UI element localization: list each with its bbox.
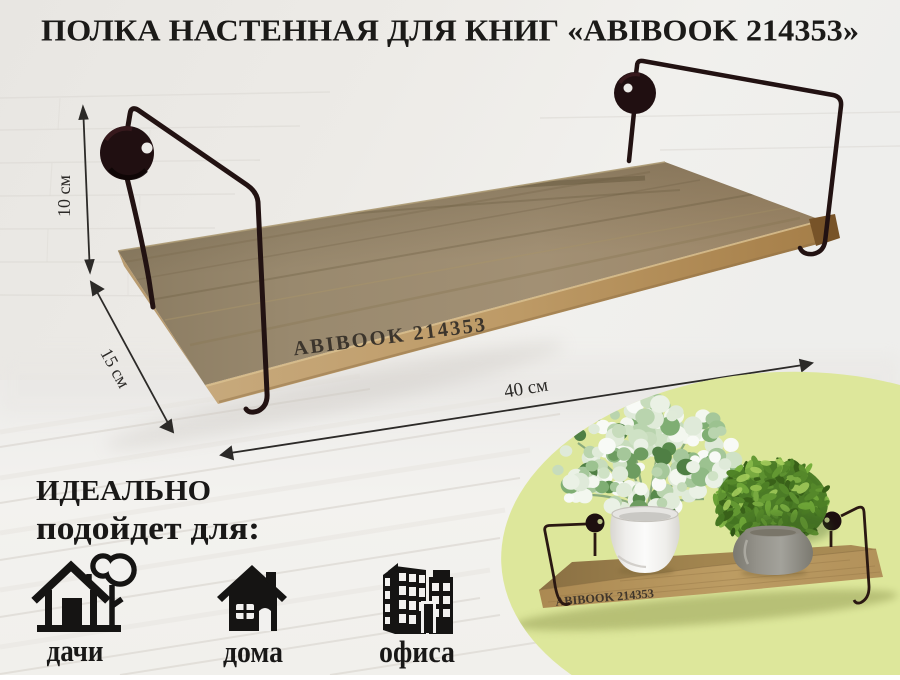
svg-text:офиса: офиса	[379, 634, 455, 669]
svg-text:10 см: 10 см	[54, 175, 74, 217]
svg-text:ПОЛКА НАСТЕННАЯ ДЛЯ КНИГ «ABIB: ПОЛКА НАСТЕННАЯ ДЛЯ КНИГ «ABIBOOK 214353…	[41, 14, 859, 48]
svg-text:ИДЕАЛЬНО: ИДЕАЛЬНО	[36, 476, 211, 507]
svg-text:дома: дома	[223, 634, 283, 669]
svg-text:подойдет для:: подойдет для:	[36, 511, 260, 547]
svg-text:дачи: дачи	[47, 633, 104, 668]
